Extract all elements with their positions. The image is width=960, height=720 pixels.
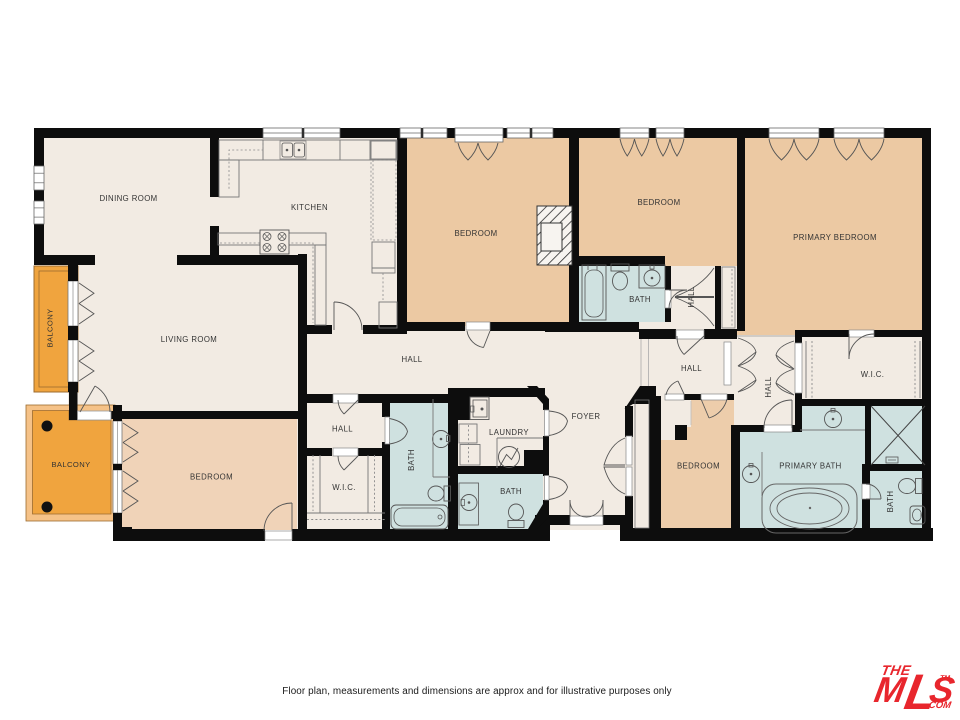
svg-text:BEDROOM: BEDROOM [637,198,680,207]
svg-text:DINING ROOM: DINING ROOM [99,194,157,203]
svg-text:HALL: HALL [681,364,702,373]
svg-text:FOYER: FOYER [572,412,601,421]
svg-text:HALL: HALL [764,376,773,397]
svg-text:HALL: HALL [332,425,353,434]
svg-text:KITCHEN: KITCHEN [291,203,328,212]
svg-text:BATH: BATH [500,487,522,496]
svg-text:BATH: BATH [886,491,895,513]
svg-text:Floor plan, measurements and d: Floor plan, measurements and dimensions … [282,686,671,697]
svg-text:TM: TM [939,675,950,682]
svg-text:BEDROOM: BEDROOM [677,462,720,471]
svg-text:HALL: HALL [687,286,696,307]
svg-text:W.I.C.: W.I.C. [861,370,885,379]
svg-text:LAUNDRY: LAUNDRY [489,428,529,437]
svg-text:BALCONY: BALCONY [51,460,90,469]
svg-text:PRIMARY BEDROOM: PRIMARY BEDROOM [793,233,877,242]
svg-text:W.I.C.: W.I.C. [332,483,356,492]
svg-text:BEDROOM: BEDROOM [454,229,497,238]
svg-text:BATH: BATH [407,449,416,471]
svg-text:BEDROOM: BEDROOM [190,473,233,482]
svg-text:BALCONY: BALCONY [46,308,55,347]
svg-text:BATH: BATH [629,295,651,304]
svg-text:LIVING ROOM: LIVING ROOM [161,335,217,344]
svg-text:.COM: .COM [925,700,953,711]
svg-text:HALL: HALL [401,355,422,364]
svg-text:PRIMARY BATH: PRIMARY BATH [779,462,841,471]
